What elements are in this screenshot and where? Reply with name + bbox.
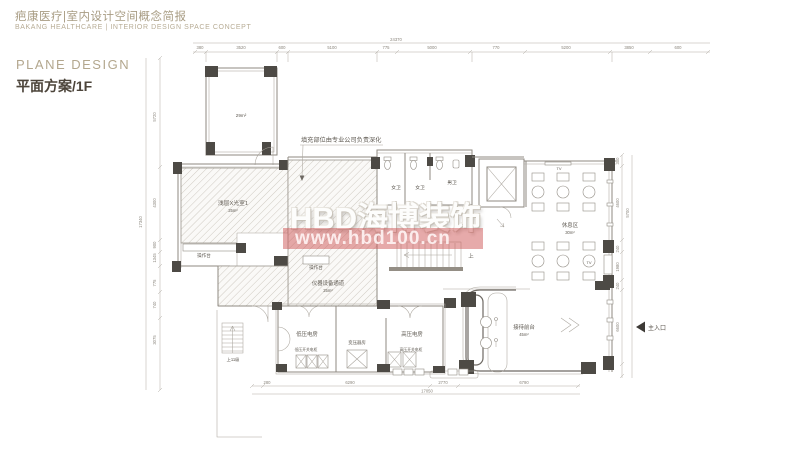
stairs-up-label: 上 <box>468 252 474 260</box>
entrance-marker: 主入口 <box>636 322 666 333</box>
hv-room-label: 高压电房 <box>401 330 423 338</box>
toilet-icon <box>410 157 417 170</box>
annotation-text: 填充部位由专业公司负责深化 <box>301 136 381 144</box>
dim-label: 240 <box>615 245 620 253</box>
dim-label: 4300 <box>152 198 157 208</box>
tv-label-top: TV <box>556 166 561 171</box>
dim-label: 380 <box>197 45 205 50</box>
counter-left-label: 操作台 <box>197 252 211 259</box>
person-icon <box>495 318 498 327</box>
lv-room-label: 低压电房 <box>296 330 318 338</box>
dim-label: 280 <box>264 380 272 385</box>
wc-female1-label: 女卫 <box>391 184 401 191</box>
dim-label: 740 <box>152 301 157 309</box>
dim-label: 6600 <box>615 322 620 332</box>
floor-arrow-icon <box>561 318 579 332</box>
dim-label: 5100 <box>327 45 337 50</box>
dim-label: 5200 <box>561 45 571 50</box>
entrance-label: 主入口 <box>648 324 666 332</box>
entrance-arrow-icon <box>636 322 645 333</box>
slide: 疤康医疗|室内设计空间概念简报 BAKANG HEALTHCARE | INTE… <box>0 0 800 450</box>
toilet-icon <box>384 157 391 170</box>
dim-label: 3850 <box>624 45 634 50</box>
dim-label: 1345 <box>152 253 157 263</box>
person-icon <box>495 339 498 348</box>
lv-cabinet-icons <box>296 355 328 368</box>
xray-room-label: 浅层X光室1 <box>218 199 248 207</box>
electrical-rooms: 低压电房 低压开关电柜 变压器房 高压电房 高压开关电柜 <box>272 300 468 375</box>
dim-label: 1980 <box>615 262 620 272</box>
dim-label: 5720 <box>152 112 157 122</box>
hv-cabinet-label: 高压开关电柜 <box>400 347 423 352</box>
tv-label-side: TV <box>586 260 591 265</box>
top-room: 29m² <box>205 66 277 165</box>
stairs-11-label: 上11级 <box>227 356 241 363</box>
watermark-banner: www.hbd100.cn <box>283 228 483 249</box>
dim-label: 600 <box>279 45 287 50</box>
equip-corridor-area: 25m² <box>323 288 333 293</box>
urinal-icon <box>453 160 459 168</box>
reception-size: 45m² <box>519 332 529 337</box>
rest-area-label: 休息区 <box>562 221 579 229</box>
dim-label: 2770 <box>438 380 448 385</box>
reception: 接待前台 45m² <box>430 281 613 378</box>
wc-male-label: 男卫 <box>447 180 457 186</box>
dim-label: 600 <box>675 45 683 50</box>
counter-right-label: 操作台 <box>309 264 323 271</box>
lv-cabinet-label: 低压开关电柜 <box>295 347 318 352</box>
dim-total-bottom: 17050 <box>421 389 433 394</box>
dim-label: 6290 <box>345 380 355 385</box>
dim-label: 4600 <box>615 198 620 208</box>
dim-label: 6790 <box>519 380 529 385</box>
dim-mid-right: 5700 <box>625 208 630 218</box>
transformer-icon <box>347 350 367 368</box>
dim-label: 775 <box>383 45 391 50</box>
dim-total-top: 24370 <box>390 37 402 42</box>
hv-cabinet-icons <box>388 352 416 367</box>
rest-area-size: 30m² <box>565 230 575 235</box>
dim-label: 240 <box>615 282 620 290</box>
rest-area: 休息区 30m² TV TV <box>524 158 616 372</box>
wc-female2-label: 女卫 <box>415 184 425 191</box>
reception-label: 接待前台 <box>513 323 535 331</box>
equip-corridor-label: 仪器设备通道 <box>312 279 345 287</box>
transformer-room-label: 变压器房 <box>348 339 366 346</box>
dim-label: 5000 <box>427 45 437 50</box>
watermark-url: www.hbd100.cn <box>295 228 451 250</box>
top-room-area: 29m² <box>236 113 247 118</box>
dim-label: 775 <box>152 279 157 287</box>
dim-label: 3075 <box>152 335 157 345</box>
toilet-icon <box>436 157 443 170</box>
exterior-stairs: 上11级 <box>217 310 262 437</box>
dim-total-left: 17340 <box>138 216 143 228</box>
xray-room-area: 25m² <box>228 208 238 213</box>
dim-label: 3520 <box>236 45 246 50</box>
table-group <box>532 173 595 211</box>
dim-label: 900 <box>152 241 157 249</box>
dim-label: 770 <box>493 45 501 50</box>
